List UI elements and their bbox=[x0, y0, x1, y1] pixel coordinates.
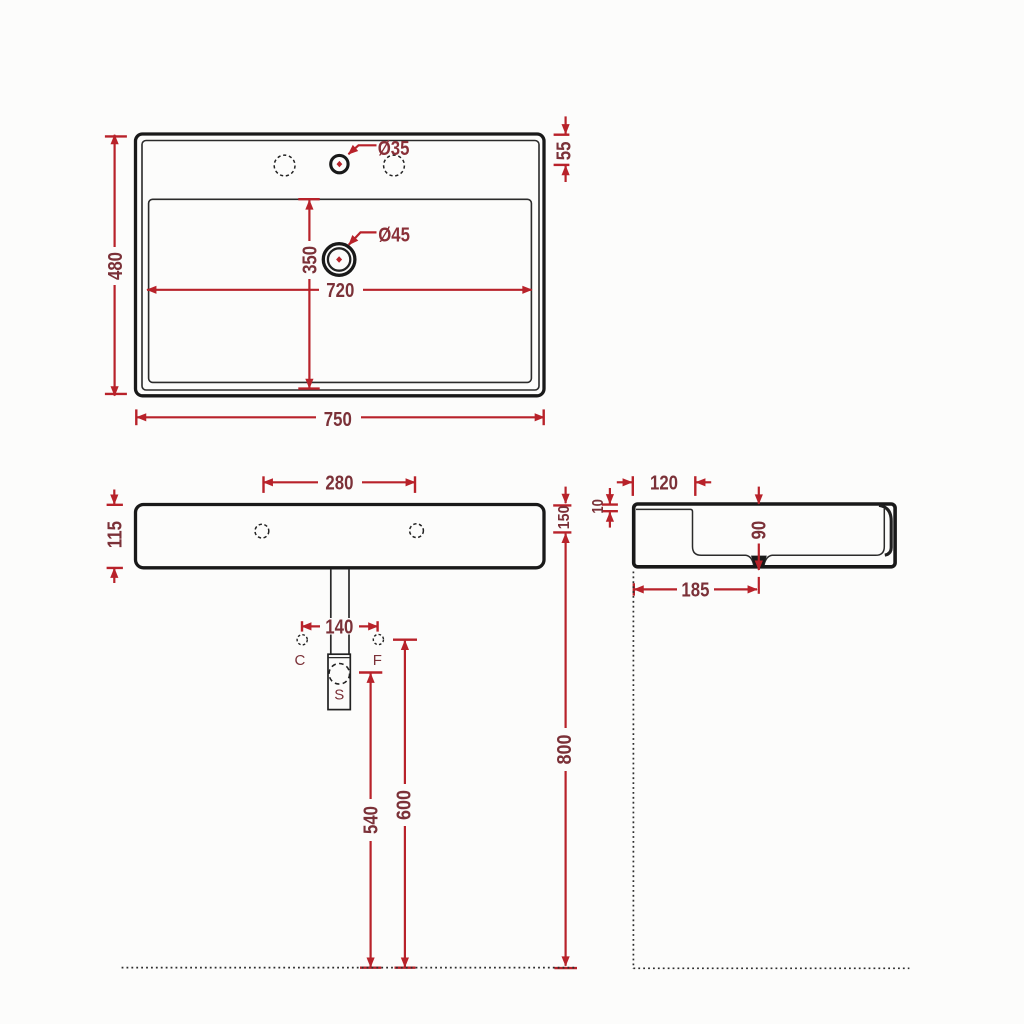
svg-text:600: 600 bbox=[394, 790, 416, 820]
svg-text:185: 185 bbox=[681, 578, 709, 601]
svg-text:55: 55 bbox=[552, 142, 575, 161]
svg-text:F: F bbox=[373, 652, 382, 669]
svg-text:120: 120 bbox=[650, 471, 678, 494]
svg-text:280: 280 bbox=[325, 471, 353, 494]
svg-text:10: 10 bbox=[590, 499, 607, 514]
svg-text:140: 140 bbox=[325, 615, 353, 638]
svg-text:800: 800 bbox=[554, 734, 576, 764]
svg-text:90: 90 bbox=[747, 521, 770, 540]
svg-text:350: 350 bbox=[298, 246, 321, 274]
svg-text:S: S bbox=[334, 687, 344, 704]
svg-text:750: 750 bbox=[324, 408, 352, 431]
svg-text:115: 115 bbox=[103, 521, 126, 548]
svg-text:720: 720 bbox=[326, 279, 354, 302]
svg-text:480: 480 bbox=[104, 252, 127, 280]
svg-text:Ø45: Ø45 bbox=[378, 223, 410, 246]
svg-text:C: C bbox=[294, 652, 305, 669]
svg-text:150: 150 bbox=[557, 506, 574, 530]
svg-text:540: 540 bbox=[359, 806, 382, 834]
svg-text:Ø35: Ø35 bbox=[378, 136, 410, 159]
